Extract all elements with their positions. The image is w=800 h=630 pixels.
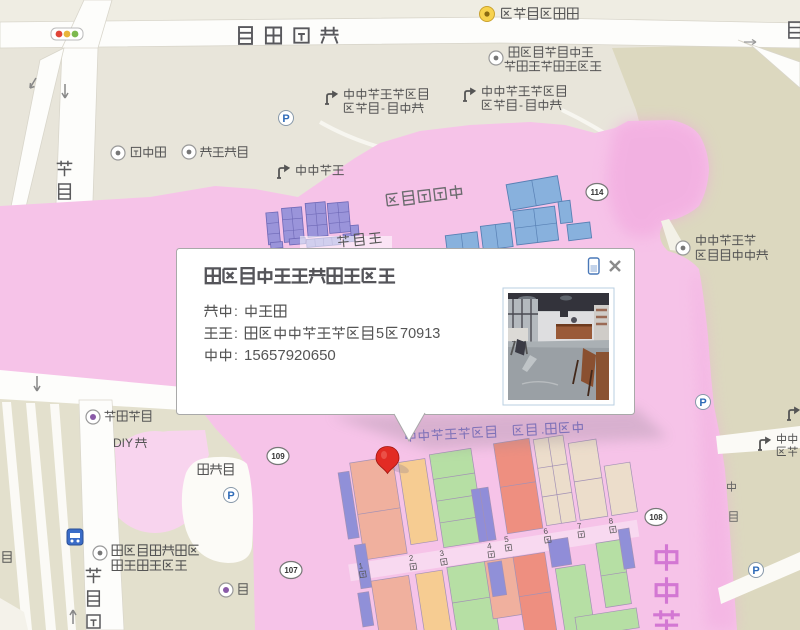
svg-text:109: 109 (271, 452, 285, 461)
svg-text:108: 108 (649, 513, 663, 522)
svg-text:5: 5 (376, 326, 384, 342)
svg-text:DIY: DIY (113, 436, 133, 450)
svg-text:P: P (227, 490, 234, 502)
svg-text:P: P (282, 113, 289, 125)
svg-text:15657920650: 15657920650 (244, 347, 336, 364)
svg-text::: : (234, 325, 238, 341)
svg-text:-: - (381, 101, 385, 115)
svg-text:107: 107 (284, 566, 298, 575)
svg-text:70913: 70913 (400, 326, 440, 342)
svg-text:P: P (752, 565, 759, 577)
svg-text::: : (234, 347, 238, 363)
svg-text:P: P (699, 397, 706, 409)
svg-text:-: - (519, 98, 523, 112)
svg-text::: : (234, 303, 238, 319)
svg-text:114: 114 (591, 188, 604, 197)
